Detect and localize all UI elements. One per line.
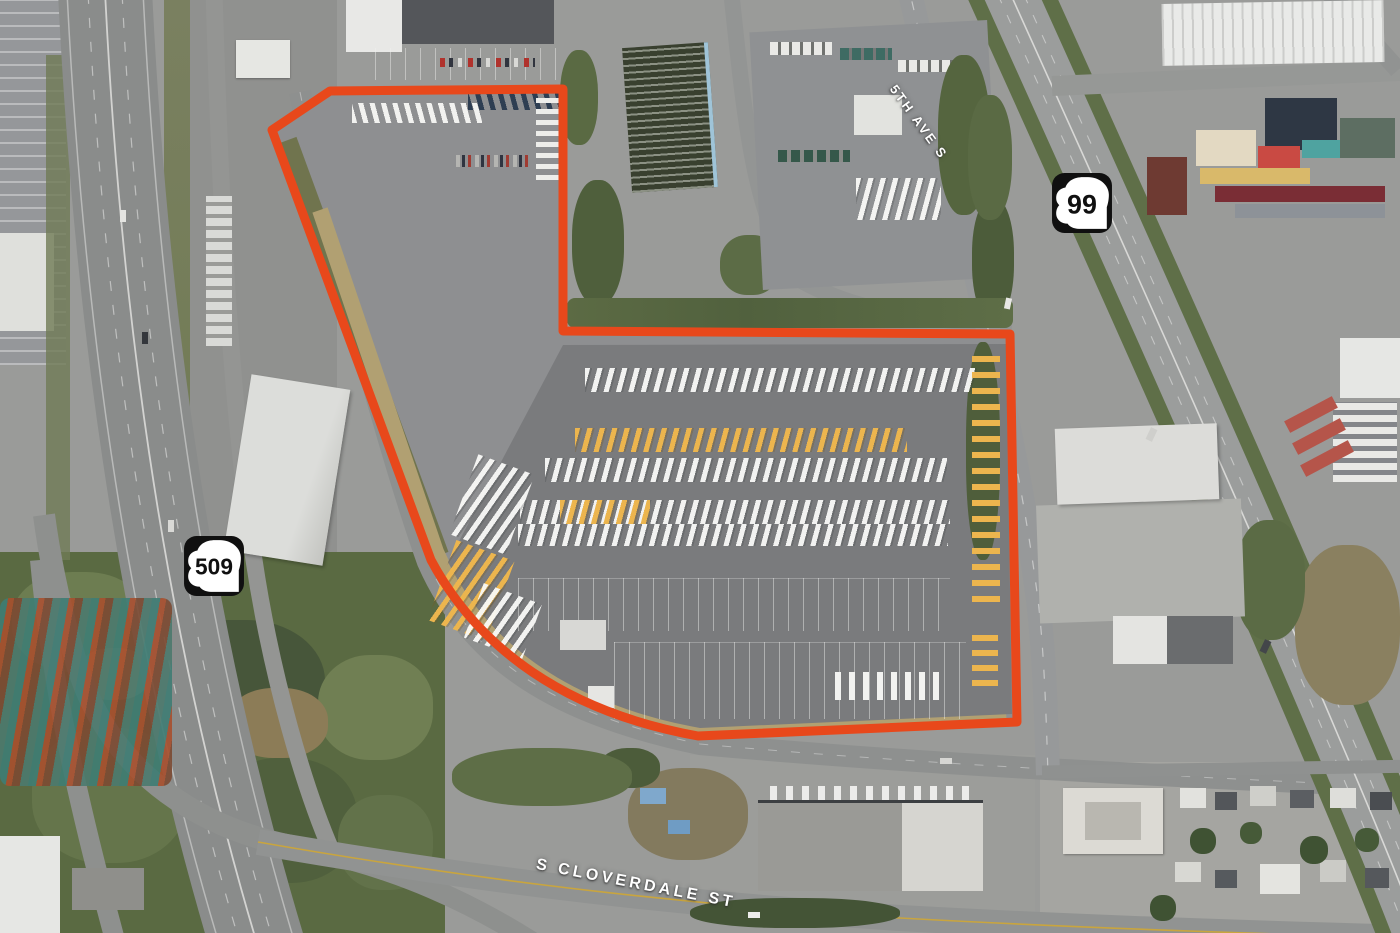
property-boundary	[272, 89, 1017, 736]
aerial-satellite-map: 509 99 5TH AVE S S CLOVERDALE ST	[0, 0, 1400, 933]
route-shield-99: 99	[1051, 172, 1113, 234]
route-number: 99	[1067, 189, 1097, 219]
route-number: 509	[195, 553, 233, 579]
route-shield-509: 509	[183, 535, 245, 597]
boundary-layer	[0, 0, 1400, 933]
